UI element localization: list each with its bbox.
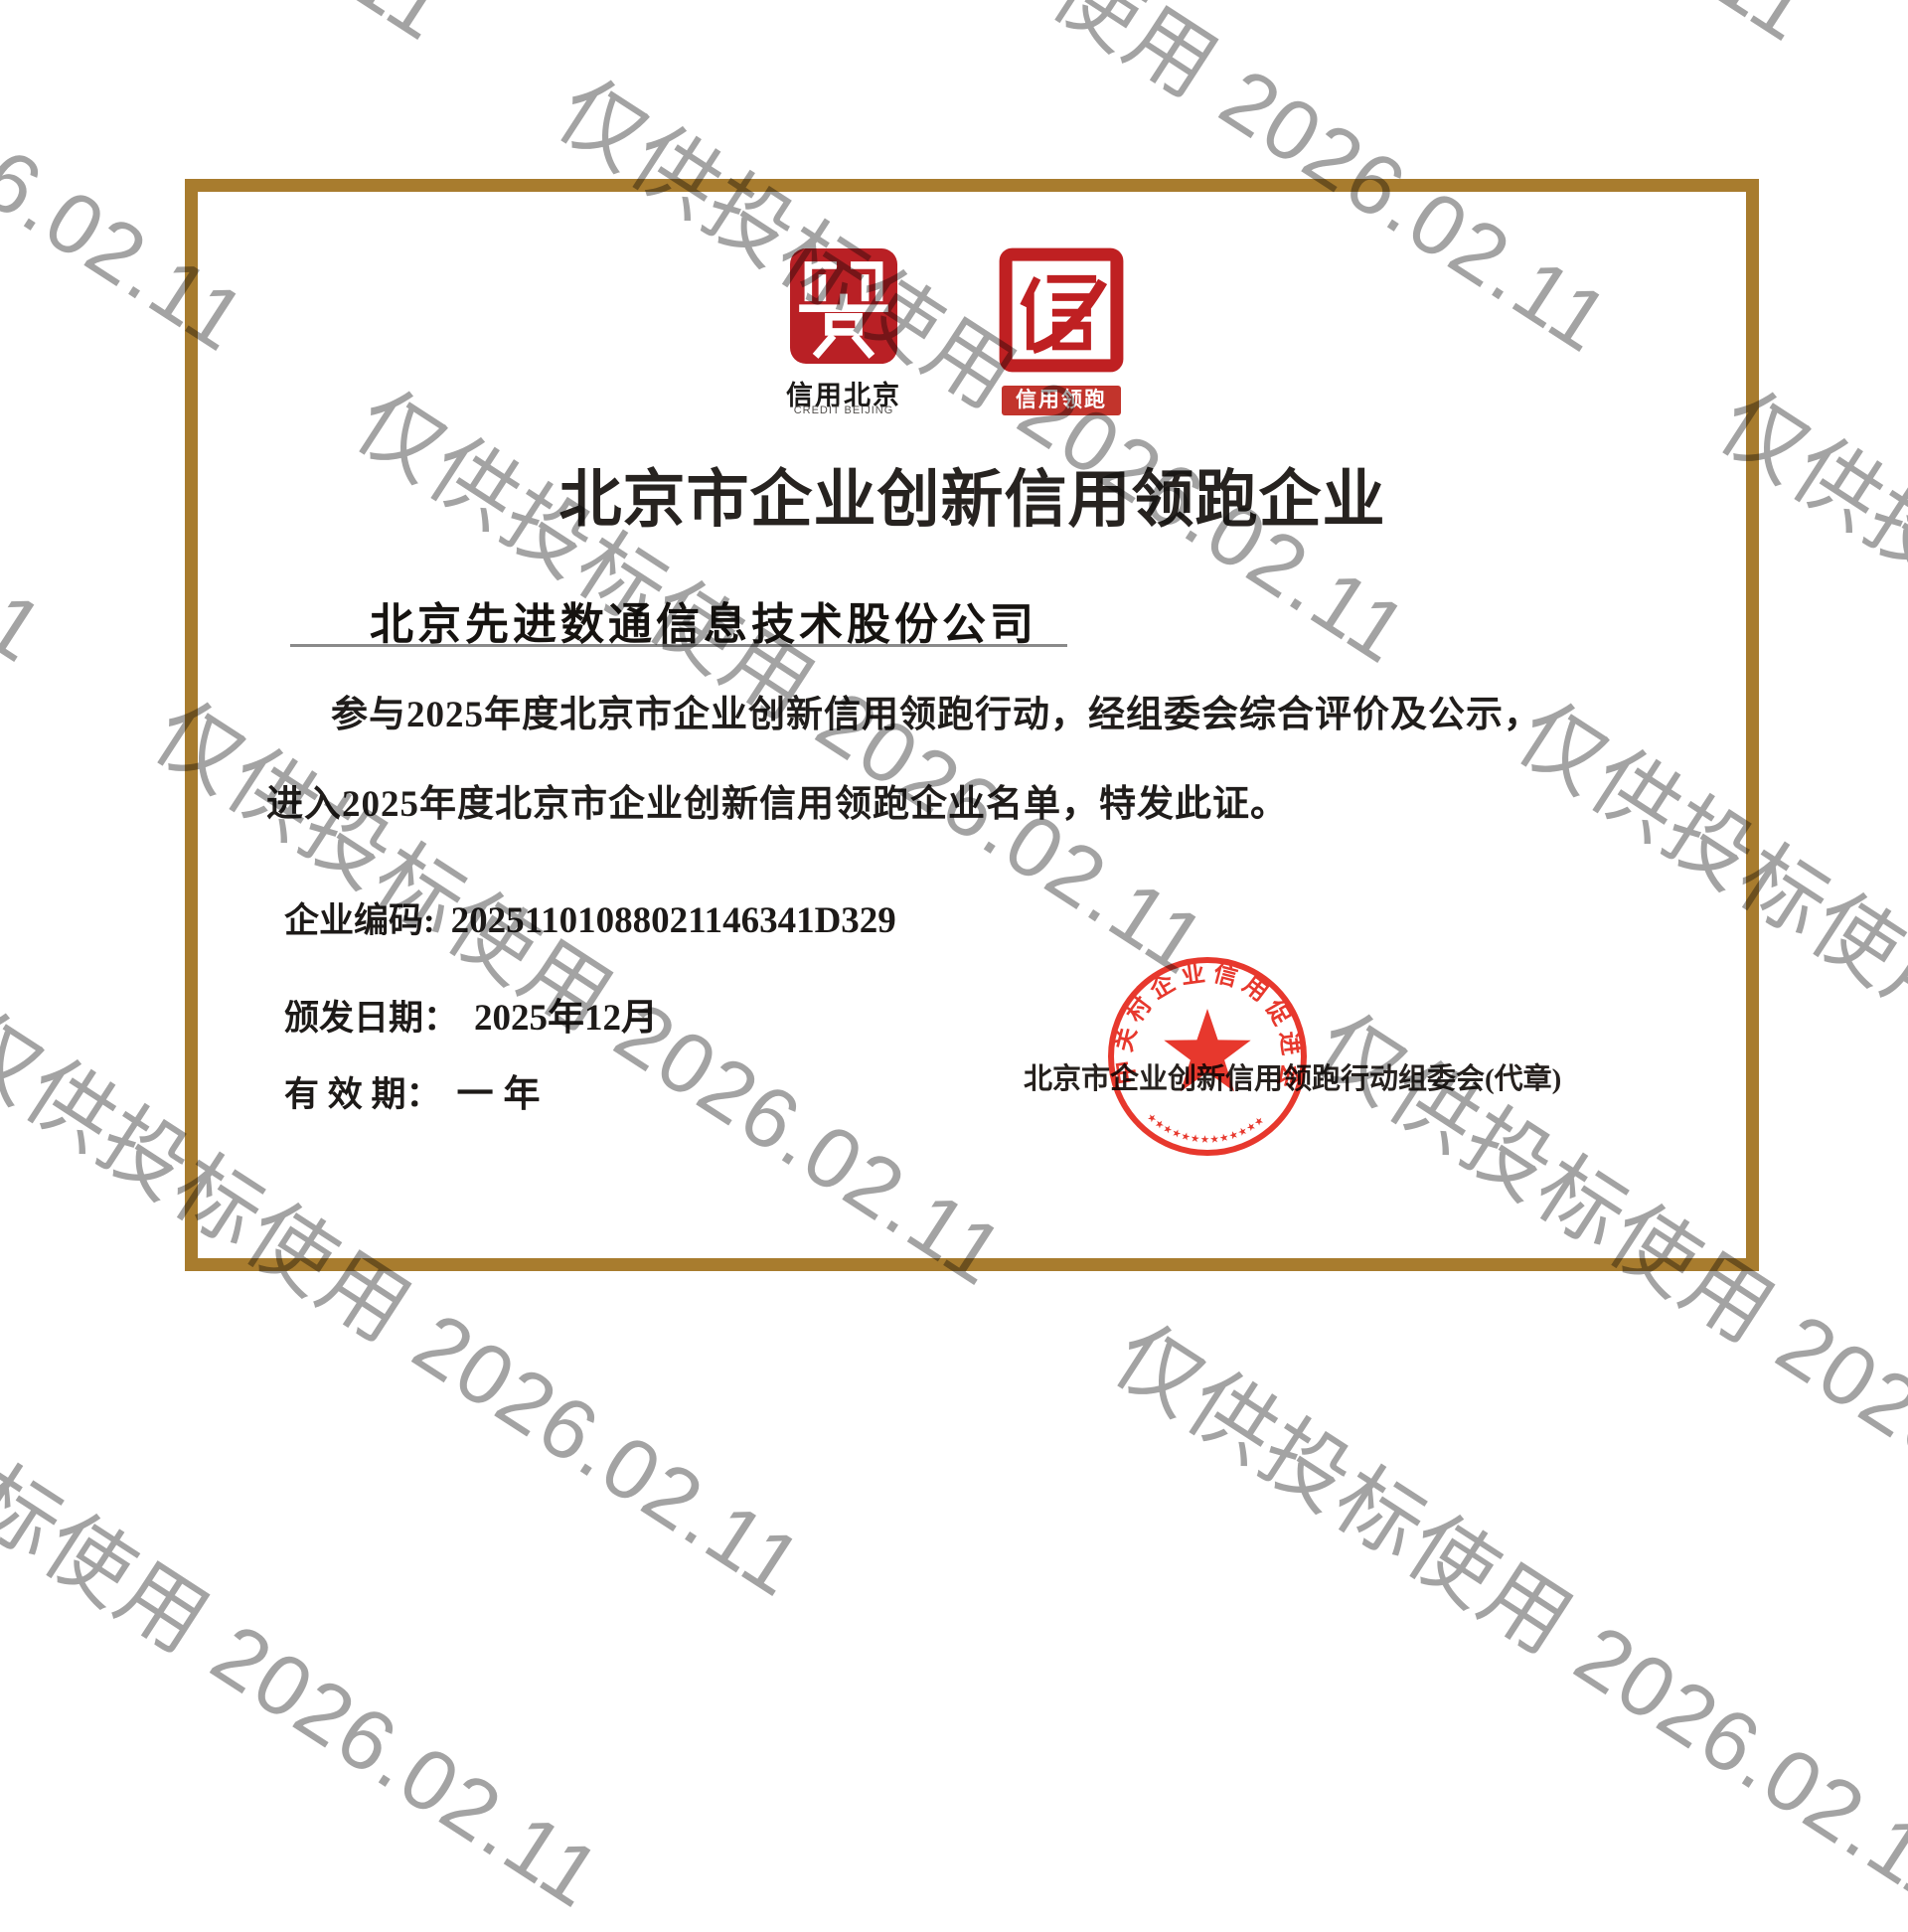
seal-star-icon [1164,1009,1250,1091]
enterprise-code-value: 20251101088021146341D329 [451,900,896,941]
company-underline [290,644,1067,647]
credit-leader-logo [997,245,1126,375]
validity-row: 有 效 期： 一年 [284,1063,551,1117]
validity-value: 一年 [457,1074,551,1115]
credit-beijing-caption-en: CREDIT BEIJING [764,404,923,416]
credit-leader-logo-icon [997,245,1126,375]
body-line-2: 进入2025年度北京市企业创新信用领跑企业名单，特发此证。 [266,773,1288,827]
credit-beijing-logo [790,248,897,364]
certificate-title: 北京市企业创新信用领跑企业 [199,449,1746,540]
issue-date-value: 2025年12月 [474,998,658,1039]
credit-leader-caption: 信用领跑 [1002,386,1121,415]
watermark-text: 仅供投标使用 2026.02.11 [0,42,74,686]
watermark-text: 仅供投标使用 2026.02.11 [0,1287,630,1931]
enterprise-code-row: 企业编码: 20251101088021146341D329 [284,892,896,943]
watermark-text: 仅供投标使用 2026.02.11 [0,0,477,64]
watermark-text: 仅供投标使用 2026.02.11 [1094,1288,1908,1932]
validity-label: 有 效 期： [284,1075,441,1114]
credit-beijing-logo-icon [790,248,897,364]
red-seal-stamp: 中关村企业信用促进会 ★★★★★★★★★★★★★ [1093,942,1322,1171]
company-name: 北京先进数通信息技术股份公司 [370,588,1037,652]
enterprise-code-label: 企业编码: [284,901,435,940]
body-line-1: 参与2025年度北京市企业创新信用领跑行动，经组委会综合评价及公示， [331,684,1541,737]
issue-date-label: 颁发日期： [284,999,458,1038]
watermark-text: 仅供投标使用 2026.02.11 [1901,44,1908,688]
issue-date-row: 颁发日期： 2025年12月 [284,987,658,1041]
watermark-text: 仅供投标使用 2026.02.11 [941,0,1840,65]
